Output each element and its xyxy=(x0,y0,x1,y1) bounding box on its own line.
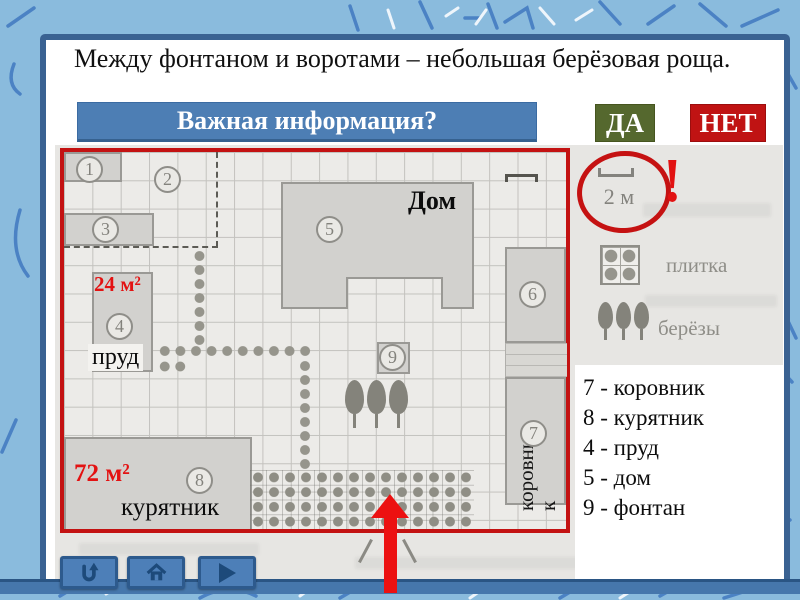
red-arrow-shaft xyxy=(384,516,397,593)
tile-legend-label: плитка xyxy=(666,253,727,278)
tile-plaza xyxy=(250,470,474,529)
birch-tree-icon xyxy=(598,302,613,329)
cowshed-label: коровник xyxy=(515,387,559,511)
pond-area-label: 24 м² xyxy=(94,272,141,297)
marker-1: 1 xyxy=(76,156,103,183)
tile-legend-icon xyxy=(600,245,640,285)
tile-path-horizontal xyxy=(157,343,313,359)
birch-tree-icon xyxy=(616,302,631,329)
scale-bar-icon xyxy=(598,168,634,177)
marker-2: 2 xyxy=(154,166,181,193)
house-label: Дом xyxy=(408,186,456,216)
birch-tree-icon xyxy=(634,302,649,329)
next-button[interactable] xyxy=(198,556,256,589)
marker-5: 5 xyxy=(316,216,343,243)
tile-path-vertical-2 xyxy=(297,359,313,470)
key-item-fountain: 9 - фонтан xyxy=(583,493,784,523)
key-item-cowshed: 7 - коровник xyxy=(583,373,784,403)
yes-button[interactable]: ДА xyxy=(595,104,655,142)
play-icon xyxy=(219,563,236,583)
coop-label: курятник xyxy=(121,494,219,522)
marker-4: 4 xyxy=(106,313,133,340)
key-item-pond: 4 - пруд xyxy=(583,433,784,463)
birch-tree-icon xyxy=(389,380,408,414)
home-button[interactable] xyxy=(127,556,185,589)
marker-3: 3 xyxy=(92,216,119,243)
marker-6: 6 xyxy=(519,281,546,308)
marker-8: 8 xyxy=(186,467,213,494)
pond-label: пруд xyxy=(88,344,143,371)
question-banner: Важная информация? xyxy=(77,102,537,142)
slide-card: Между фонтаном и воротами – небольшая бе… xyxy=(40,34,790,592)
birch-tree-icon xyxy=(367,380,386,414)
birch-grove xyxy=(345,380,408,414)
marker-9: 9 xyxy=(379,344,406,371)
brick-path xyxy=(505,343,567,377)
scan-artifact xyxy=(79,543,259,555)
coop-area-label: 72 м² xyxy=(74,460,130,488)
exclamation-mark: ! xyxy=(663,149,682,214)
key-item-coop: 8 - курятник xyxy=(583,403,784,433)
back-button[interactable] xyxy=(60,556,118,589)
key-list: 7 - коровник 8 - курятник 4 - пруд 5 - д… xyxy=(575,365,784,580)
wicket-gate-mark xyxy=(505,174,538,182)
dashed-boundary-horizontal xyxy=(64,246,218,248)
key-item-house: 5 - дом xyxy=(583,463,784,493)
birch-legend-label: берёзы xyxy=(658,316,720,341)
undo-icon xyxy=(76,560,102,586)
tile-path-stub xyxy=(157,359,188,374)
red-arrow-icon xyxy=(371,494,409,518)
home-icon xyxy=(144,560,169,585)
task-statement: Между фонтаном и воротами – небольшая бе… xyxy=(74,42,734,76)
tile-path-vertical-1 xyxy=(191,249,208,345)
birch-legend-icon xyxy=(598,302,649,329)
bottom-bar xyxy=(0,579,800,594)
marker-7: 7 xyxy=(520,420,547,447)
dashed-boundary-vertical xyxy=(216,152,218,247)
no-button[interactable]: НЕТ xyxy=(690,104,766,142)
birch-tree-icon xyxy=(345,380,364,414)
scale-label: 2 м xyxy=(597,184,641,210)
plan-map: коровник Дом 24 м² пруд 72 м² курятник 1… xyxy=(60,148,570,533)
question-banner-label: Важная информация? xyxy=(177,106,437,136)
scan-artifact xyxy=(645,295,777,307)
